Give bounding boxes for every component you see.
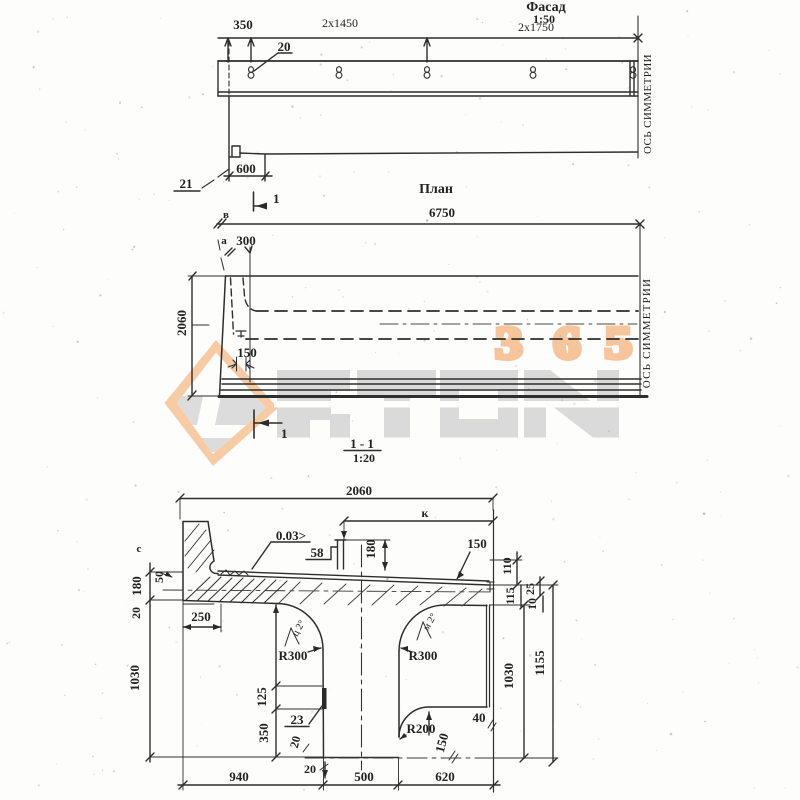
svg-text:ц 2°: ц 2° [290,618,308,638]
svg-text:58: 58 [311,545,325,560]
svg-text:1155: 1155 [532,650,547,676]
svg-text:300: 300 [236,233,256,248]
svg-text:5: 5 [605,317,632,368]
svg-text:940: 940 [229,769,249,784]
svg-text:110: 110 [500,557,514,574]
svg-text:м 2°: м 2° [421,612,439,633]
svg-text:2060: 2060 [174,310,189,336]
svg-text:6750: 6750 [429,205,455,220]
svg-text:150: 150 [237,345,257,360]
svg-text:180: 180 [129,576,144,596]
svg-text:20: 20 [287,734,304,749]
svg-text:180: 180 [363,539,378,559]
svg-text:1030: 1030 [501,663,516,689]
svg-text:а: а [221,235,227,247]
svg-text:ОСЬ СИММЕТРИИ: ОСЬ СИММЕТРИИ [641,278,653,388]
svg-text:План: План [419,182,453,197]
svg-text:350: 350 [233,17,253,32]
svg-text:23: 23 [291,712,305,727]
svg-text:1:20: 1:20 [353,451,375,465]
svg-text:20: 20 [278,39,291,54]
svg-text:20: 20 [129,607,143,619]
svg-text:10: 10 [525,598,539,610]
svg-text:150: 150 [467,536,487,551]
svg-text:к: к [422,506,429,520]
svg-text:6: 6 [553,317,580,368]
svg-text:40: 40 [473,710,486,725]
svg-text:620: 620 [435,769,455,784]
svg-text:125: 125 [254,687,269,707]
svg-text:350: 350 [256,723,271,743]
svg-text:R200: R200 [407,721,436,736]
svg-text:1 - 1: 1 - 1 [350,436,374,451]
svg-text:1030: 1030 [127,665,142,691]
svg-text:2x1750: 2x1750 [518,20,554,34]
svg-text:500: 500 [354,769,374,784]
svg-text:2060: 2060 [346,483,372,498]
svg-text:ОСЬ СИММЕТРИИ: ОСЬ СИММЕТРИИ [642,54,654,154]
svg-text:в: в [223,209,229,221]
svg-text:0.03>: 0.03> [276,528,306,543]
svg-text:R300: R300 [409,648,438,663]
svg-text:115: 115 [503,587,517,604]
svg-text:20: 20 [304,762,316,776]
svg-text:R300: R300 [279,648,308,663]
svg-text:600: 600 [236,161,256,176]
svg-text:с: с [137,543,142,555]
svg-text:21: 21 [180,176,193,191]
svg-text:250: 250 [191,609,211,624]
svg-text:3: 3 [495,317,522,368]
svg-text:1: 1 [281,426,288,441]
svg-text:2x1450: 2x1450 [322,16,358,30]
svg-text:1: 1 [273,191,280,206]
